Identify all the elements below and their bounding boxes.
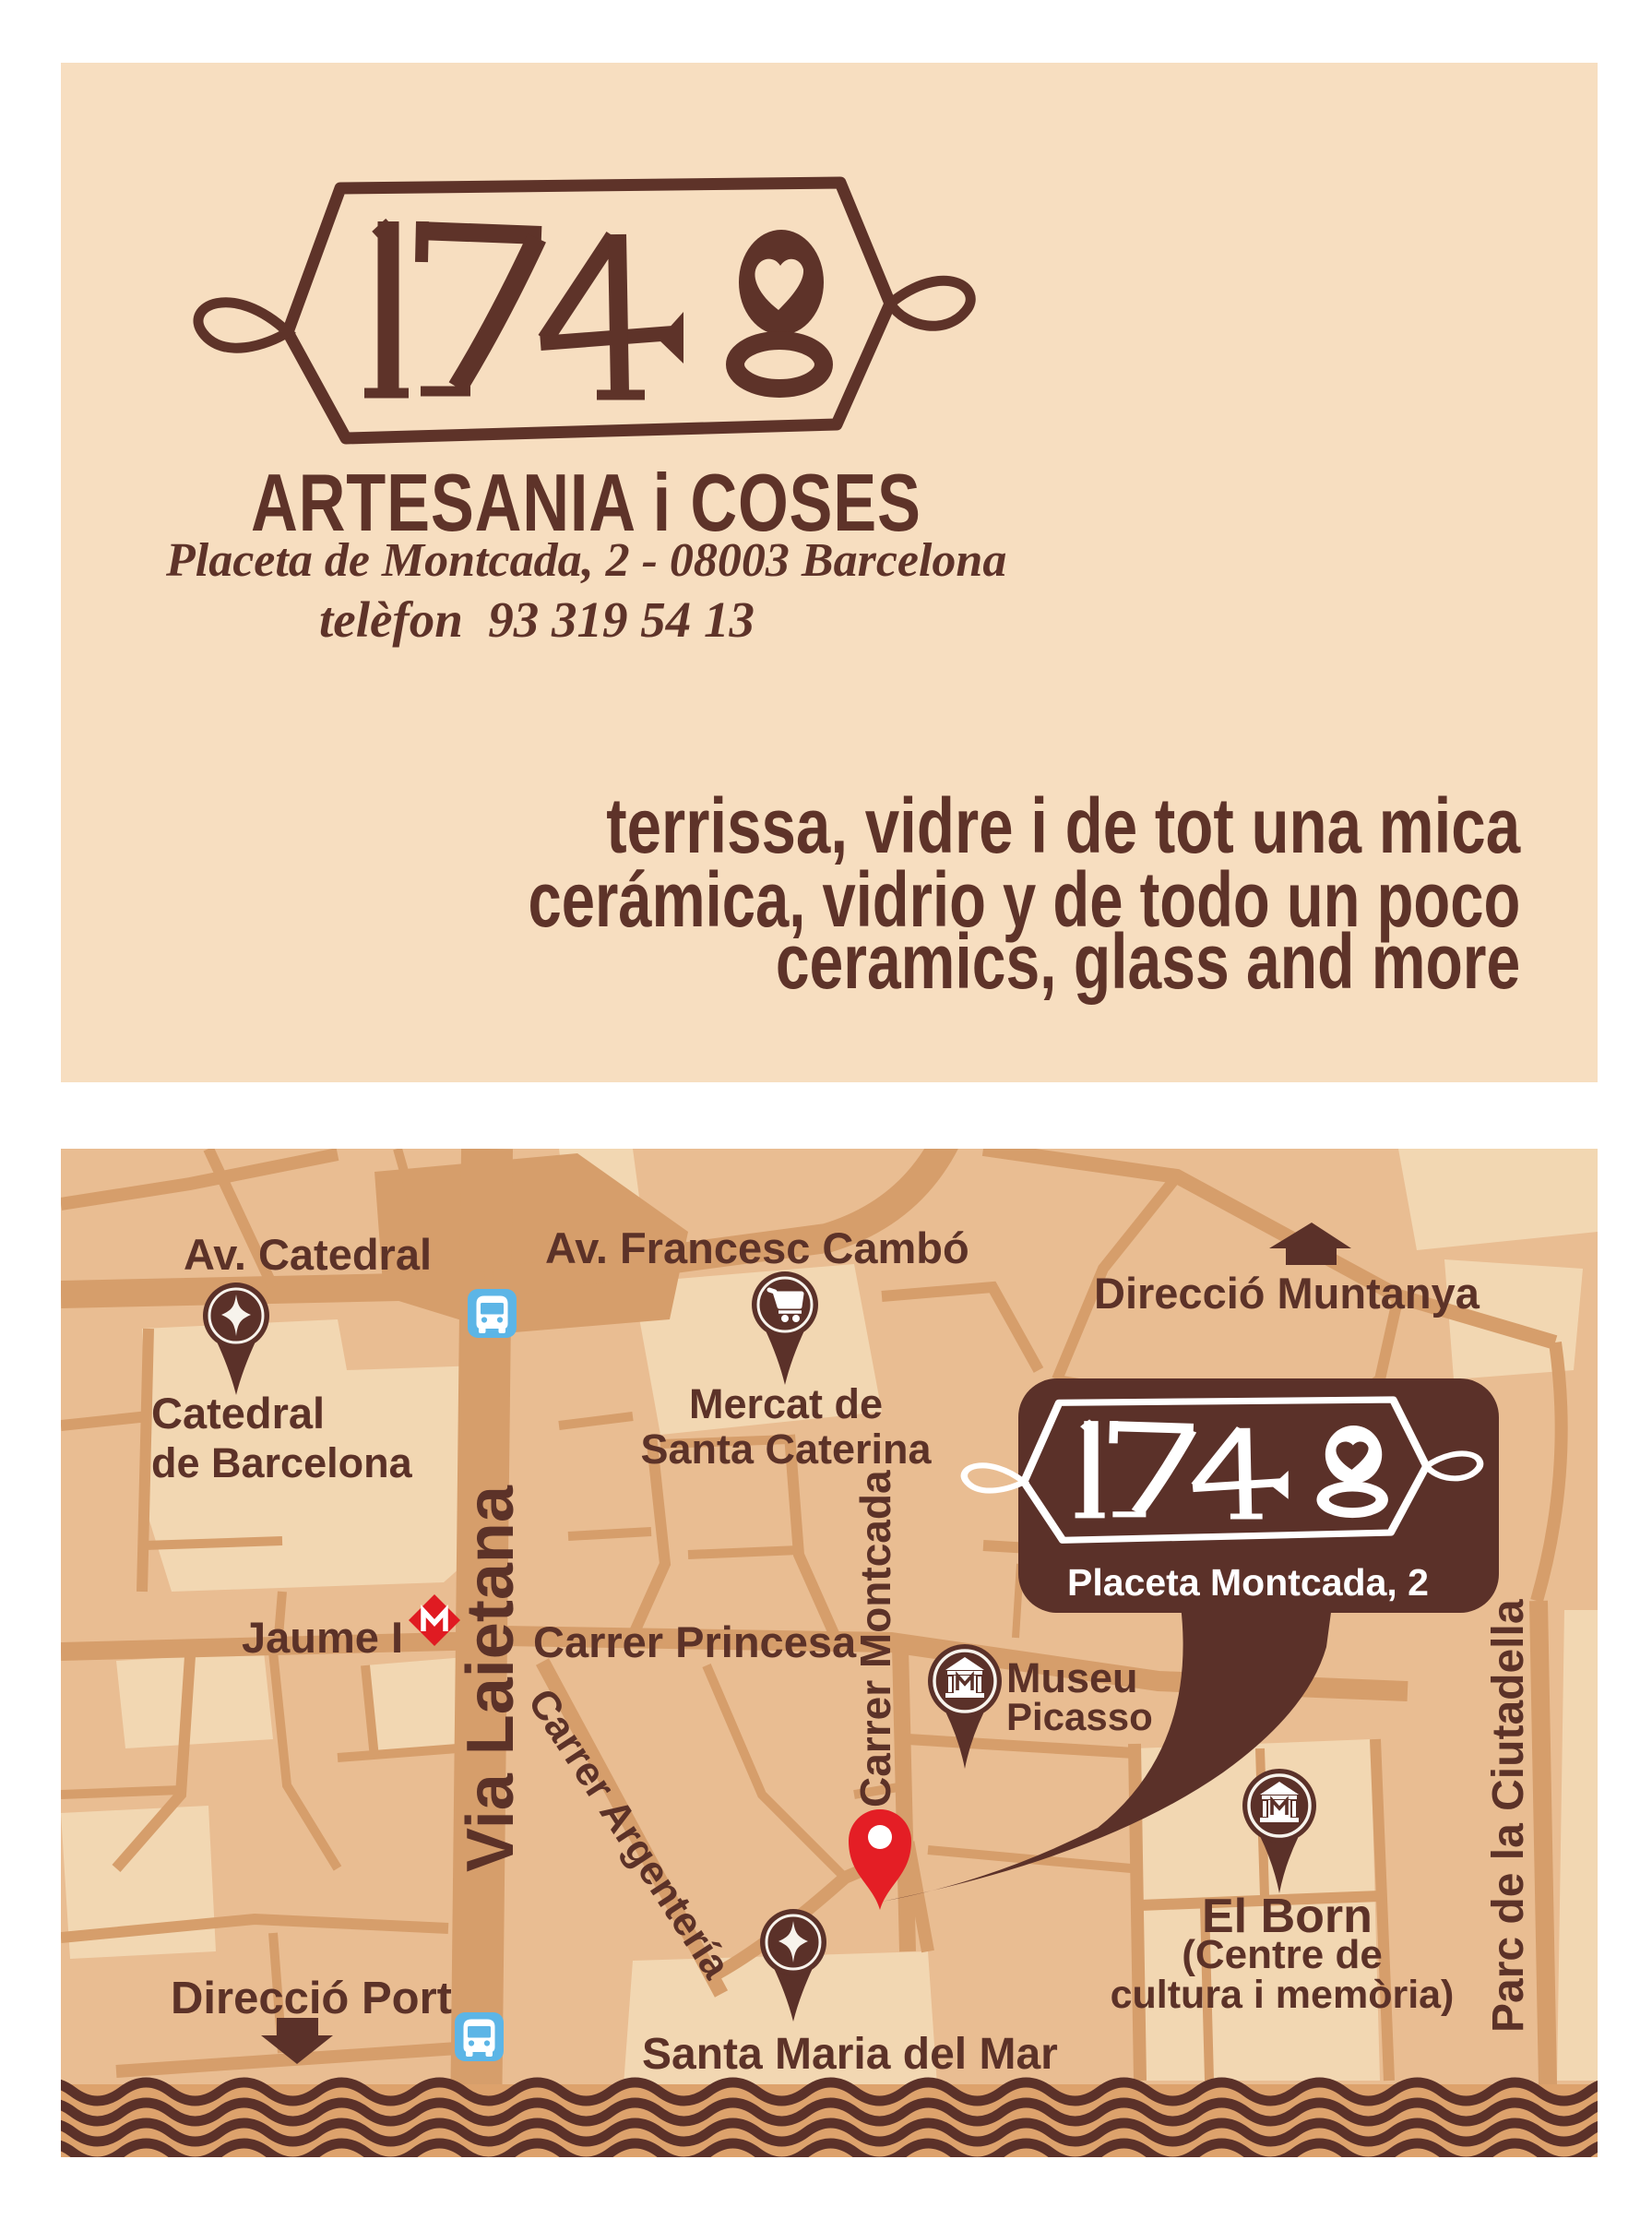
svg-text:Direcció Port: Direcció Port [171, 1974, 452, 2023]
svg-text:Carrer Montcada: Carrer Montcada [851, 1470, 899, 1807]
svg-text:de Barcelona: de Barcelona [151, 1439, 413, 1486]
svg-text:Picasso: Picasso [1006, 1695, 1153, 1738]
svg-text:Av. Francesc Cambó: Av. Francesc Cambó [545, 1223, 969, 1272]
svg-text:Via Laietana: Via Laietana [454, 1485, 528, 1872]
svg-text:(Centre de: (Centre de [1182, 1932, 1383, 1977]
svg-text:Santa Maria del Mar: Santa Maria del Mar [642, 2030, 1058, 2079]
svg-text:Av. Catedral: Av. Catedral [184, 1230, 432, 1279]
svg-text:Catedral: Catedral [151, 1389, 325, 1438]
svg-text:Placeta Montcada, 2: Placeta Montcada, 2 [1067, 1561, 1429, 1604]
svg-text:Santa Caterina: Santa Caterina [640, 1426, 932, 1473]
svg-text:Jaume I: Jaume I [242, 1613, 403, 1662]
svg-text:Mercat de: Mercat de [689, 1380, 883, 1427]
svg-text:Direcció Muntanya: Direcció Muntanya [1094, 1269, 1480, 1318]
svg-text:cultura i memòria): cultura i memòria) [1111, 1973, 1455, 2017]
svg-text:Parc de la Ciutadella: Parc de la Ciutadella [1484, 1599, 1533, 2033]
svg-text:Carrer Princesa: Carrer Princesa [533, 1617, 857, 1666]
